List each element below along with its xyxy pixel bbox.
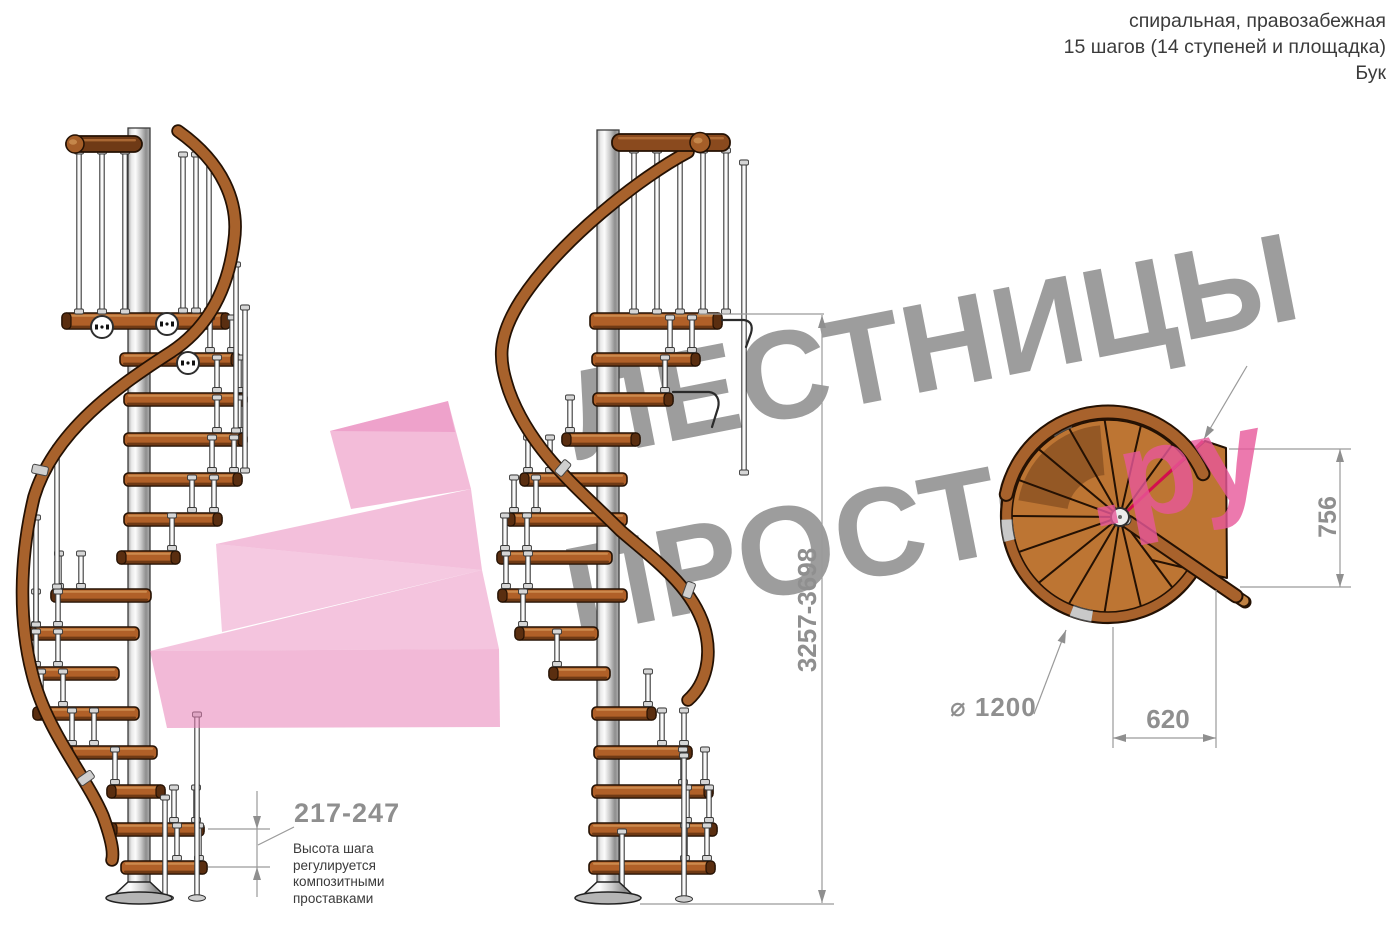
dimension-landing-depth: 756 <box>1314 467 1340 567</box>
material-label: Бук <box>1064 60 1386 86</box>
left-staircase <box>22 128 249 904</box>
dimension-landing-width: 620 <box>1118 704 1218 735</box>
dimension-step-height: 217-247 <box>294 798 400 829</box>
middle-staircase <box>497 130 752 904</box>
dimension-diameter: ⌀ 1200 <box>950 692 1037 723</box>
blueprint-canvas: ЛЕСТНИЦЫ ПРОСТО .ру спиральная, правозаб… <box>0 0 1400 951</box>
watermark-suffix: .ру <box>1072 389 1276 548</box>
steps-count-label: 15 шагов (14 ступеней и площадка) <box>1064 34 1386 60</box>
title-block: спиральная, правозабежная 15 шагов (14 с… <box>1064 8 1386 86</box>
step-height-note: Высота шага регулируется композитными пр… <box>293 841 411 907</box>
dimension-total-height: 3257-3698 <box>792 540 820 680</box>
brand-arrow <box>150 401 500 728</box>
stair-type-label: спиральная, правозабежная <box>1064 8 1386 34</box>
